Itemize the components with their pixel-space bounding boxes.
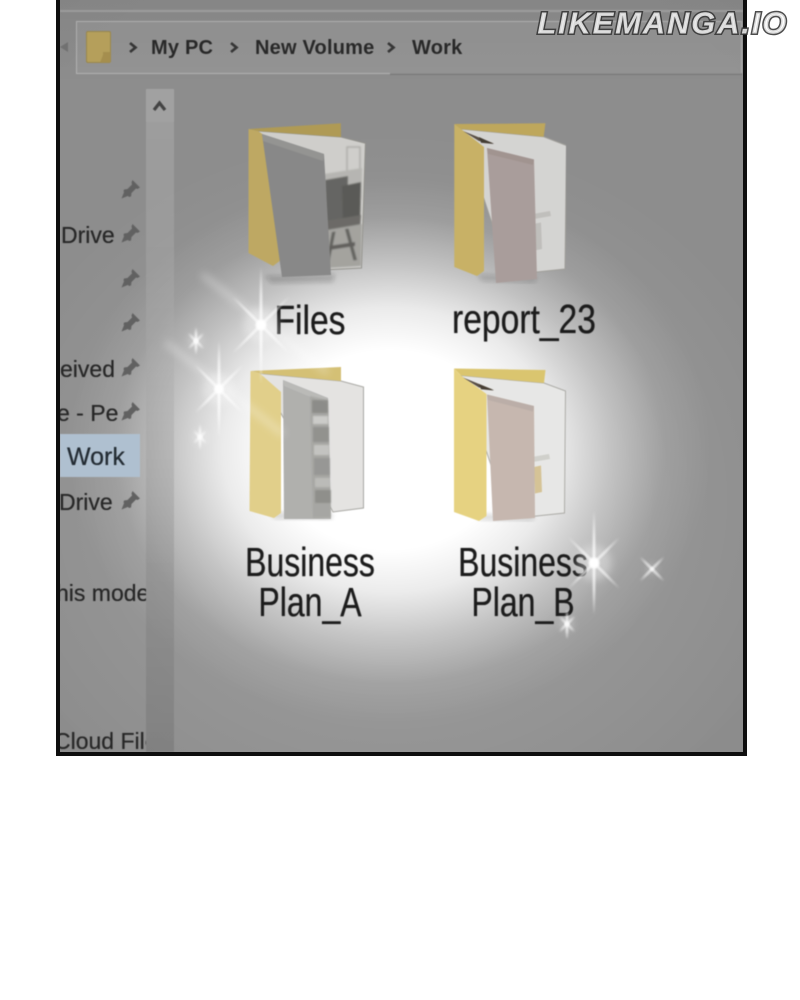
svg-text:LIKEMANGA.IO: LIKEMANGA.IO (537, 6, 788, 41)
